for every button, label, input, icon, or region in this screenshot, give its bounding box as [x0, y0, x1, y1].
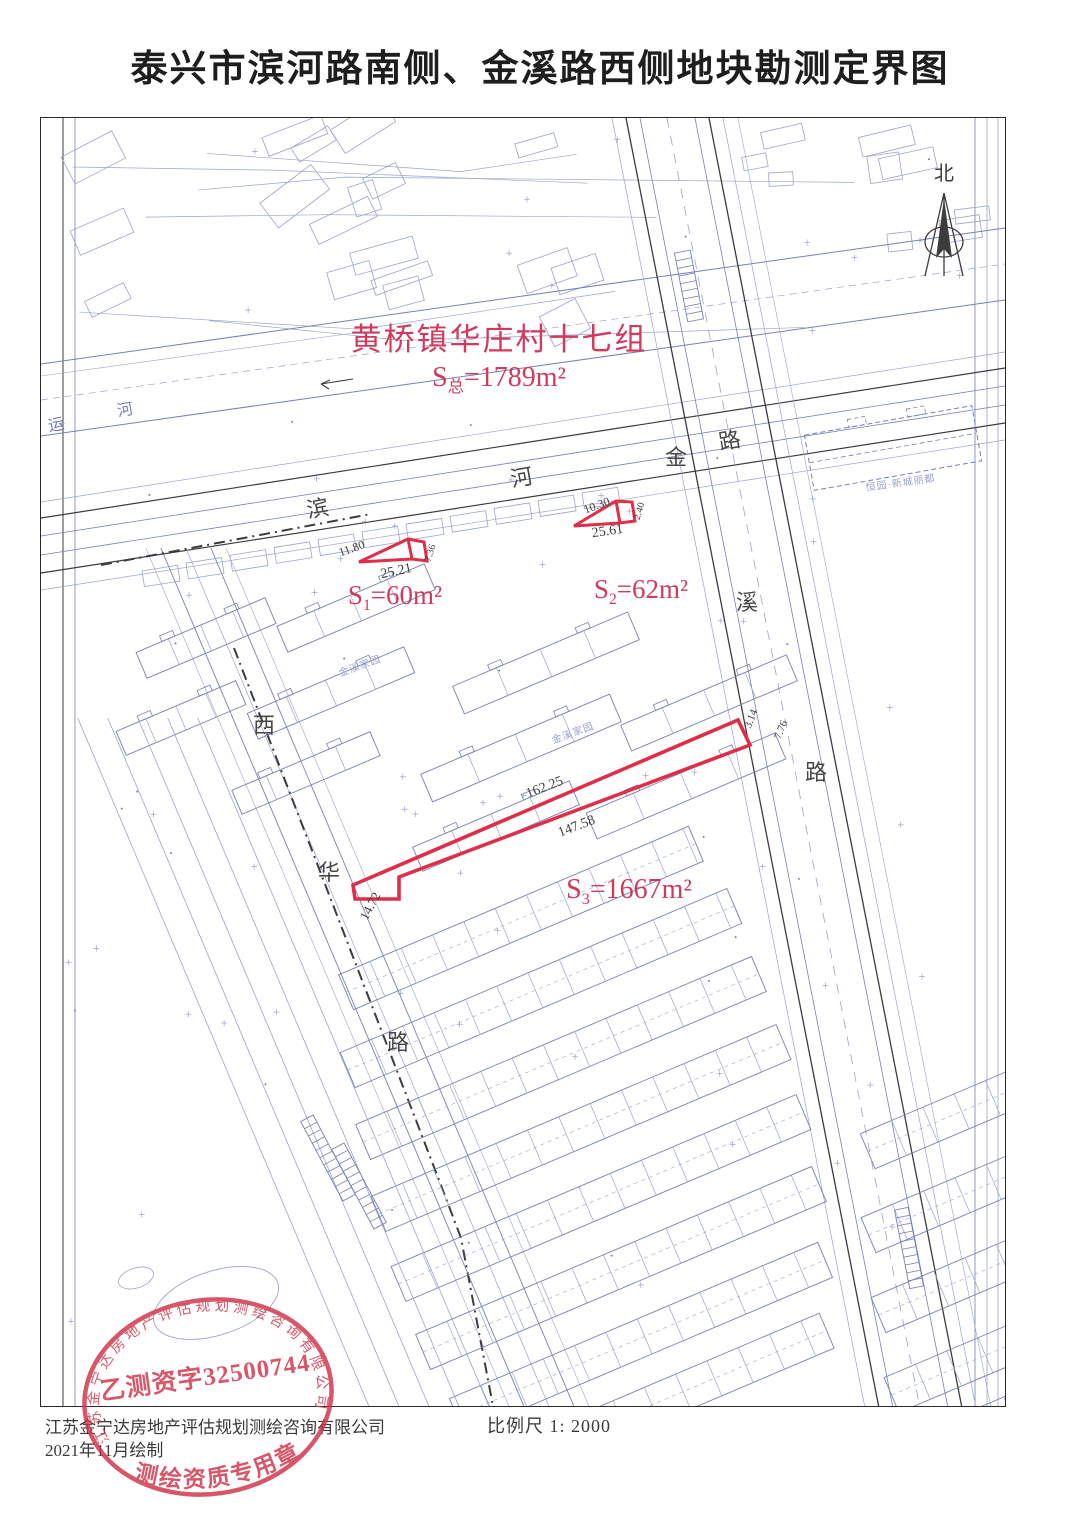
svg-text:7.76: 7.76 — [772, 718, 791, 741]
survey-document-page: 泰兴市滨河路南侧、金溪路西侧地块勘测定界图 北滨河路金溪路西华路运河金溪家园金溪… — [0, 0, 1080, 1526]
svg-text:河: 河 — [116, 400, 135, 421]
svg-text:黄桥镇华庄村十七组: 黄桥镇华庄村十七组 — [351, 322, 648, 357]
svg-text:北: 北 — [934, 162, 954, 185]
svg-text:河: 河 — [509, 463, 535, 491]
svg-text:25.21: 25.21 — [379, 561, 413, 582]
svg-text:S总=1789m²: S总=1789m² — [432, 362, 566, 396]
footer-left: 江苏金宁达房地产评估规划测绘咨询有限公司 2021年11月绘制 — [45, 1416, 385, 1462]
svg-text:金: 金 — [665, 445, 687, 470]
company-line: 江苏金宁达房地产评估规划测绘咨询有限公司 — [45, 1416, 385, 1439]
scale-label: 比例尺 1: 2000 — [487, 1412, 611, 1438]
svg-text:华: 华 — [318, 860, 340, 885]
svg-text:路: 路 — [717, 426, 743, 454]
svg-text:滨: 滨 — [305, 494, 331, 522]
svg-text:溪: 溪 — [736, 590, 758, 615]
map-title: 泰兴市滨河路南侧、金溪路西侧地块勘测定界图 — [0, 38, 1080, 92]
map-frame: 北滨河路金溪路西华路运河金溪家园金溪家园恒园·新城丽都11.8025.217.3… — [40, 117, 1006, 1407]
svg-text:金溪家园: 金溪家园 — [337, 652, 383, 679]
svg-text:11.80: 11.80 — [337, 537, 367, 559]
cadastral-map: 北滨河路金溪路西华路运河金溪家园金溪家园恒园·新城丽都11.8025.217.3… — [41, 118, 1005, 1406]
svg-text:路: 路 — [805, 760, 827, 785]
svg-text:运: 运 — [47, 415, 66, 436]
svg-text:14.72: 14.72 — [357, 889, 384, 922]
svg-text:2.40: 2.40 — [632, 501, 648, 521]
svg-text:西: 西 — [253, 713, 275, 738]
svg-text:S3=1667m²: S3=1667m² — [566, 874, 692, 908]
svg-text:路: 路 — [387, 1030, 409, 1055]
date-line: 2021年11月绘制 — [45, 1439, 385, 1462]
svg-text:S1=60m²: S1=60m² — [348, 580, 442, 614]
svg-text:S2=62m²: S2=62m² — [594, 574, 688, 608]
svg-text:25.61: 25.61 — [591, 522, 624, 541]
